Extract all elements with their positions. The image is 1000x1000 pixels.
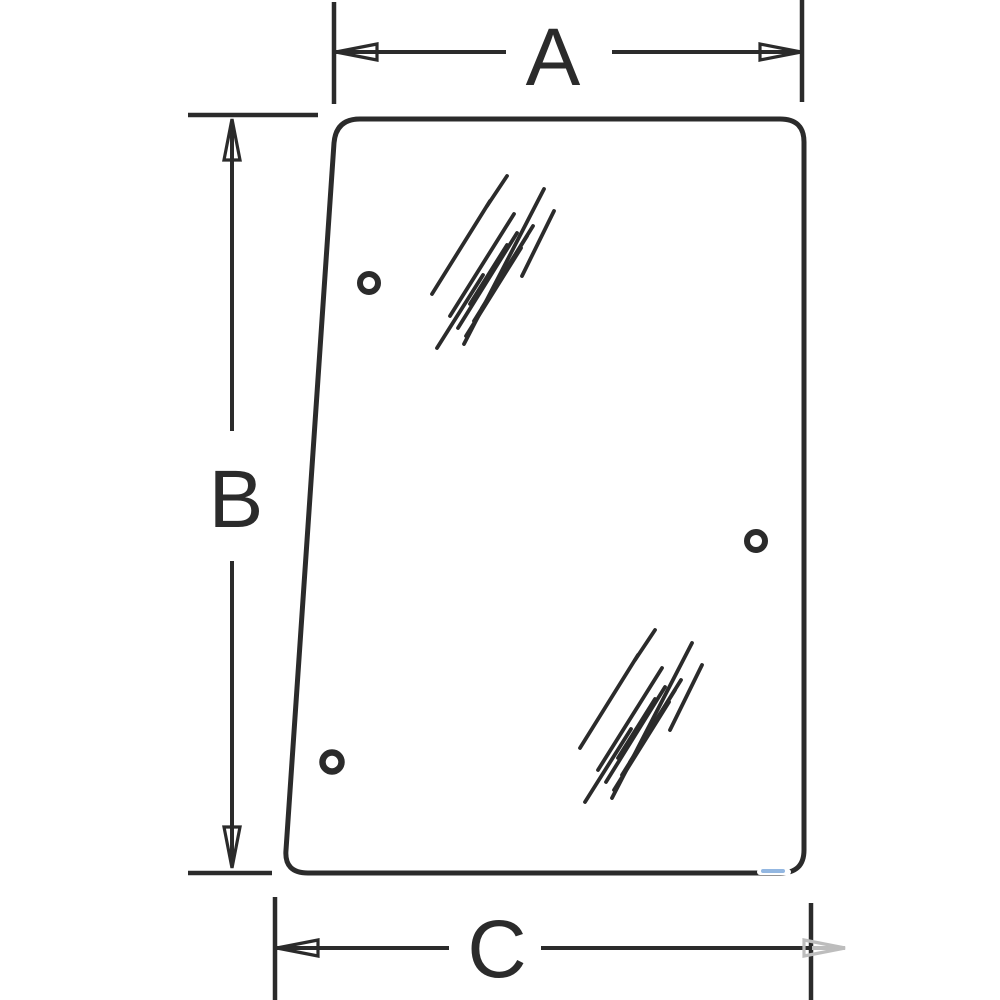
glass-panel-drawing: A B C (0, 0, 1000, 1000)
scan-artifact-blue (760, 871, 788, 872)
dimension-c-label: C (467, 904, 526, 995)
dimension-b-label: B (209, 454, 264, 545)
technical-drawing-canvas: A B C (0, 0, 1000, 1000)
dimension-c: C (275, 897, 845, 1000)
dimension-a-label: A (526, 12, 581, 103)
dimension-a: A (334, 0, 802, 104)
